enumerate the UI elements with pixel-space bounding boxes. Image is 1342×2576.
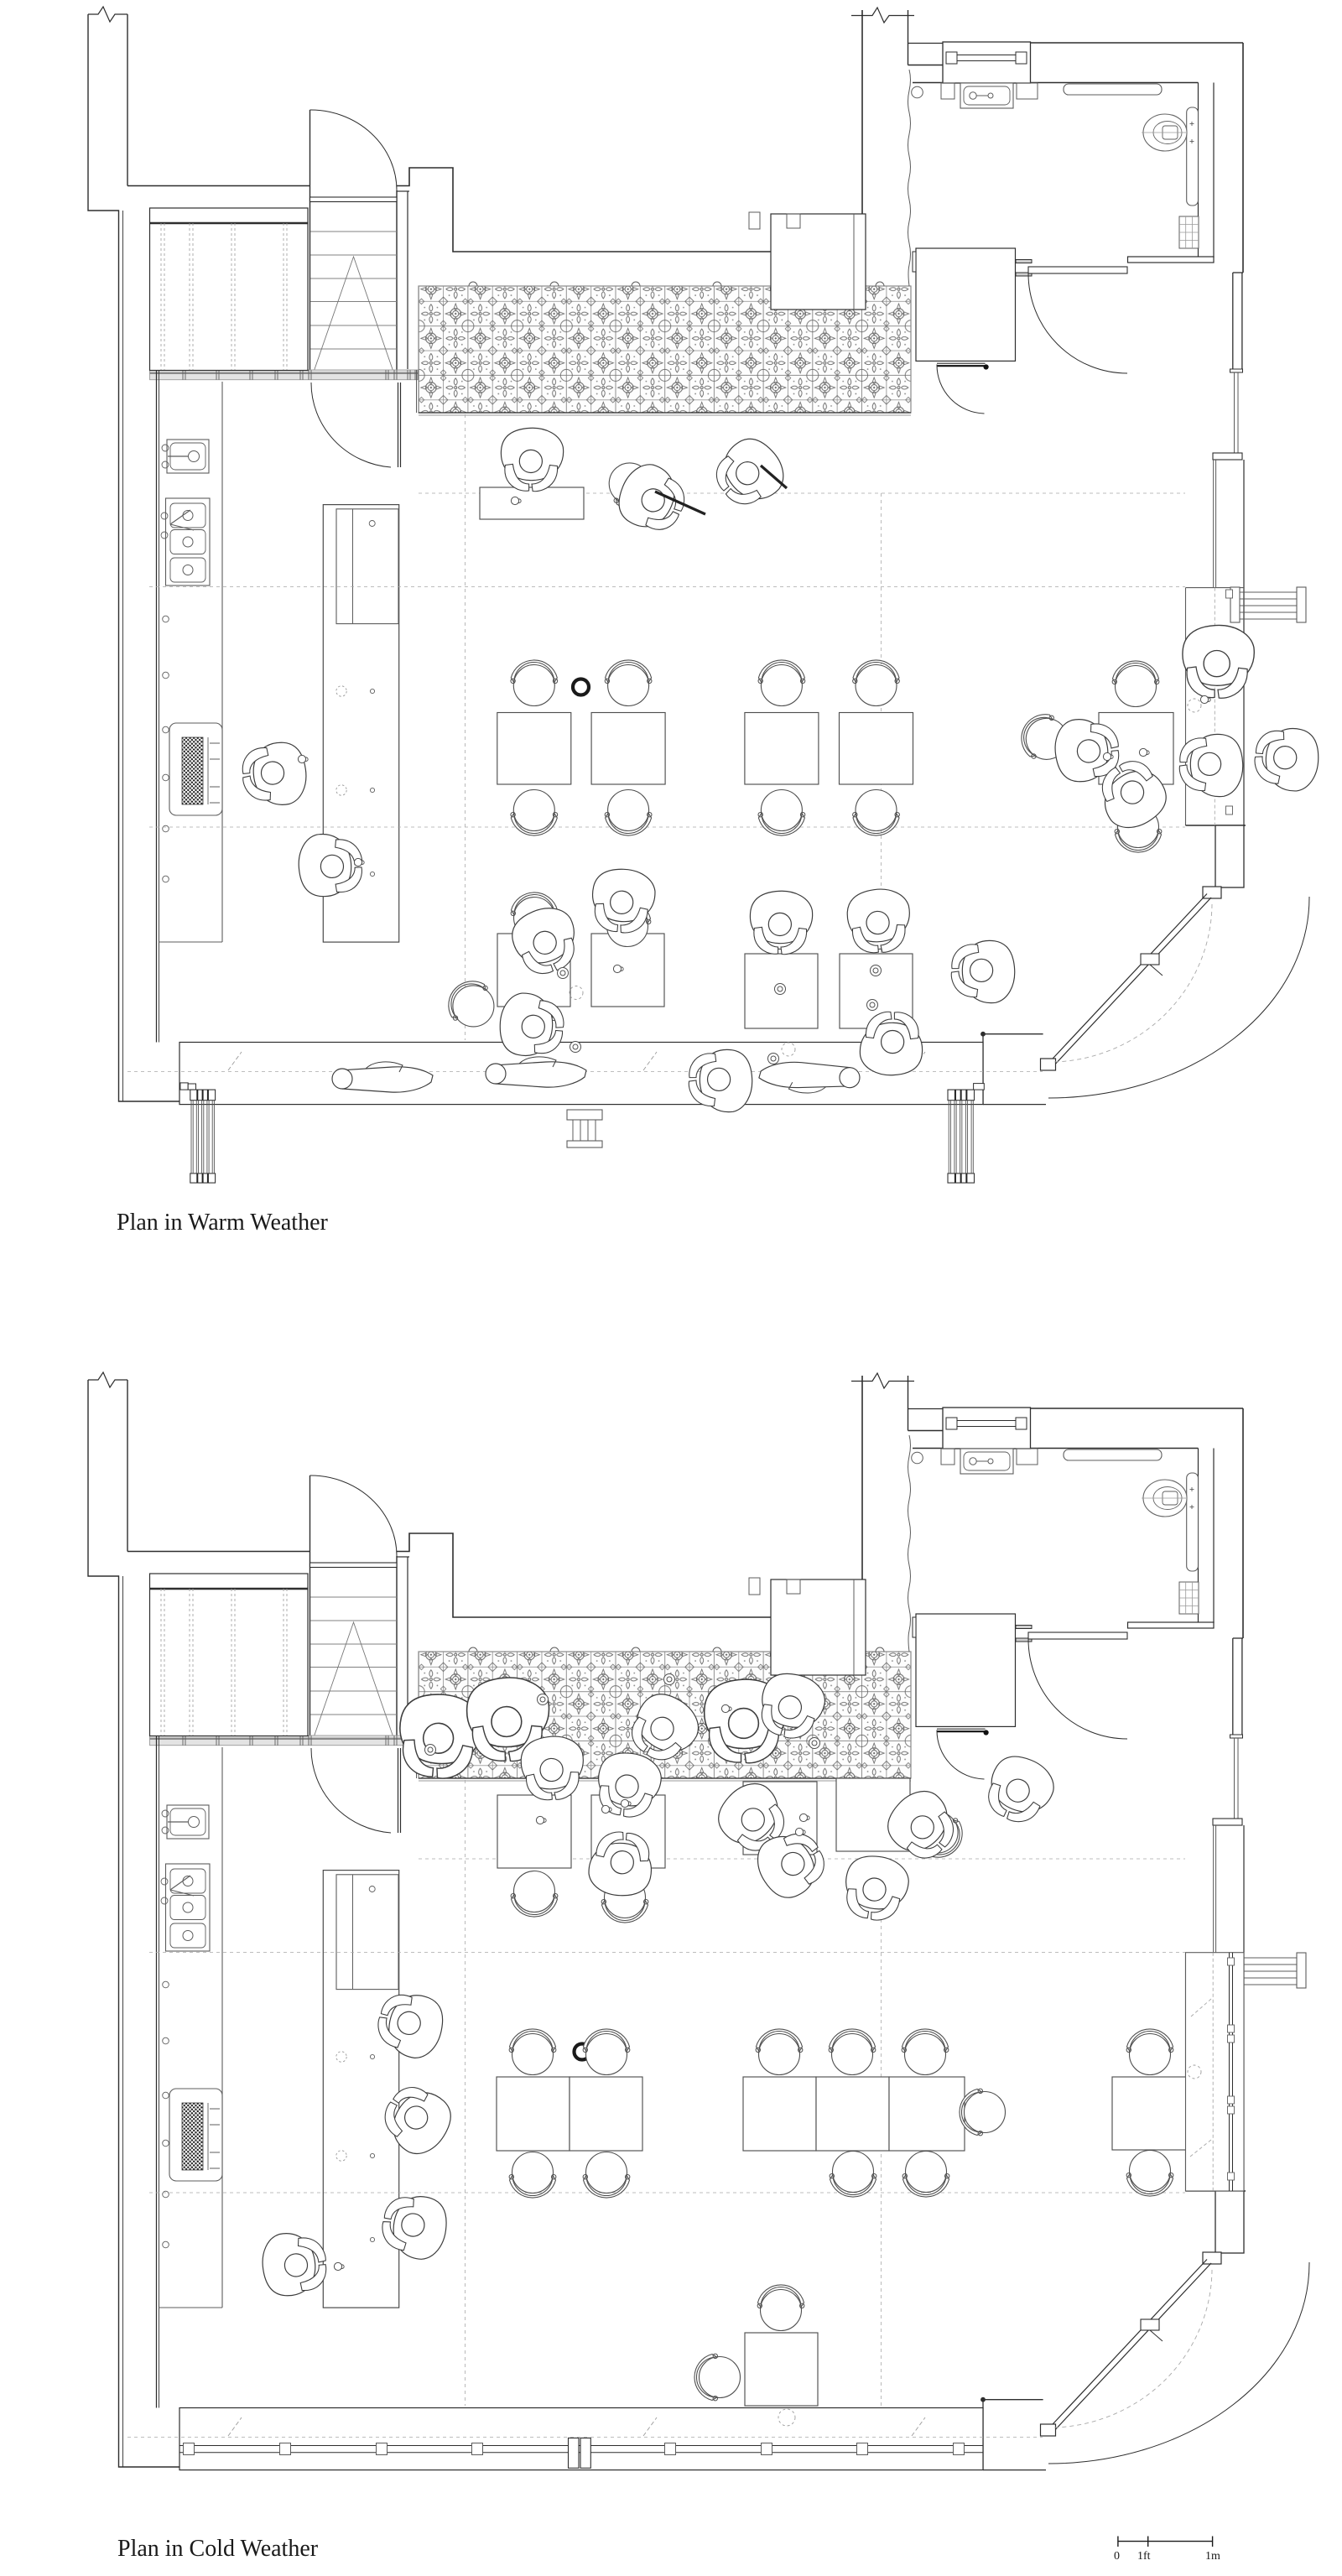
svg-text:0: 0 (1114, 2550, 1120, 2563)
svg-text:Plan in Cold Weather: Plan in Cold Weather (117, 2536, 319, 2562)
svg-text:Plan in Warm Weather: Plan in Warm Weather (117, 1210, 329, 1236)
svg-text:1ft: 1ft (1137, 2550, 1151, 2563)
svg-text:1m: 1m (1205, 2550, 1220, 2563)
